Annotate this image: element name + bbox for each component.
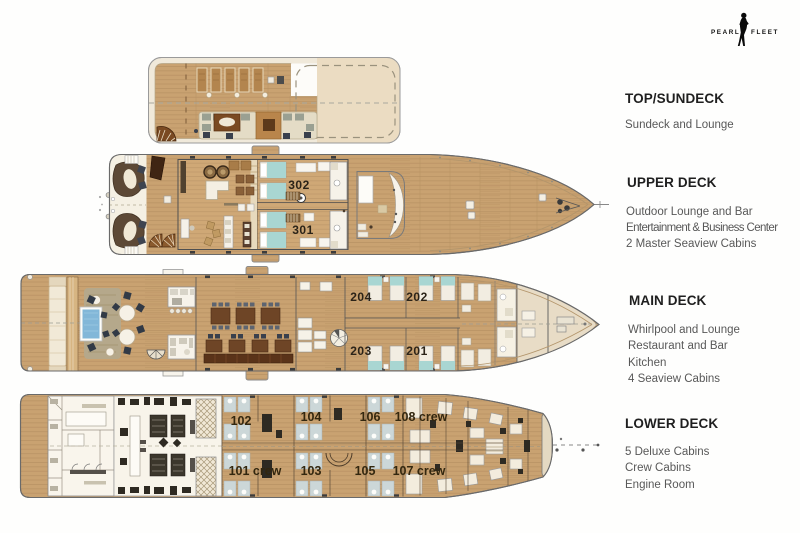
svg-text:201: 201 (406, 344, 428, 358)
svg-text:102: 102 (231, 414, 252, 428)
svg-text:FLEET: FLEET (751, 29, 779, 36)
svg-text:103: 103 (301, 464, 322, 478)
svg-text:301: 301 (292, 223, 314, 237)
svg-text:106: 106 (360, 410, 381, 424)
svg-text:101 crew: 101 crew (229, 464, 282, 478)
svg-text:PEARL: PEARL (711, 29, 740, 36)
svg-text:104: 104 (301, 410, 322, 424)
svg-text:107 crew: 107 crew (393, 464, 446, 478)
svg-text:302: 302 (288, 178, 310, 192)
svg-text:203: 203 (350, 344, 372, 358)
svg-text:202: 202 (406, 290, 428, 304)
svg-text:108 crew: 108 crew (395, 410, 448, 424)
svg-text:105: 105 (355, 464, 376, 478)
svg-text:204: 204 (350, 290, 372, 304)
